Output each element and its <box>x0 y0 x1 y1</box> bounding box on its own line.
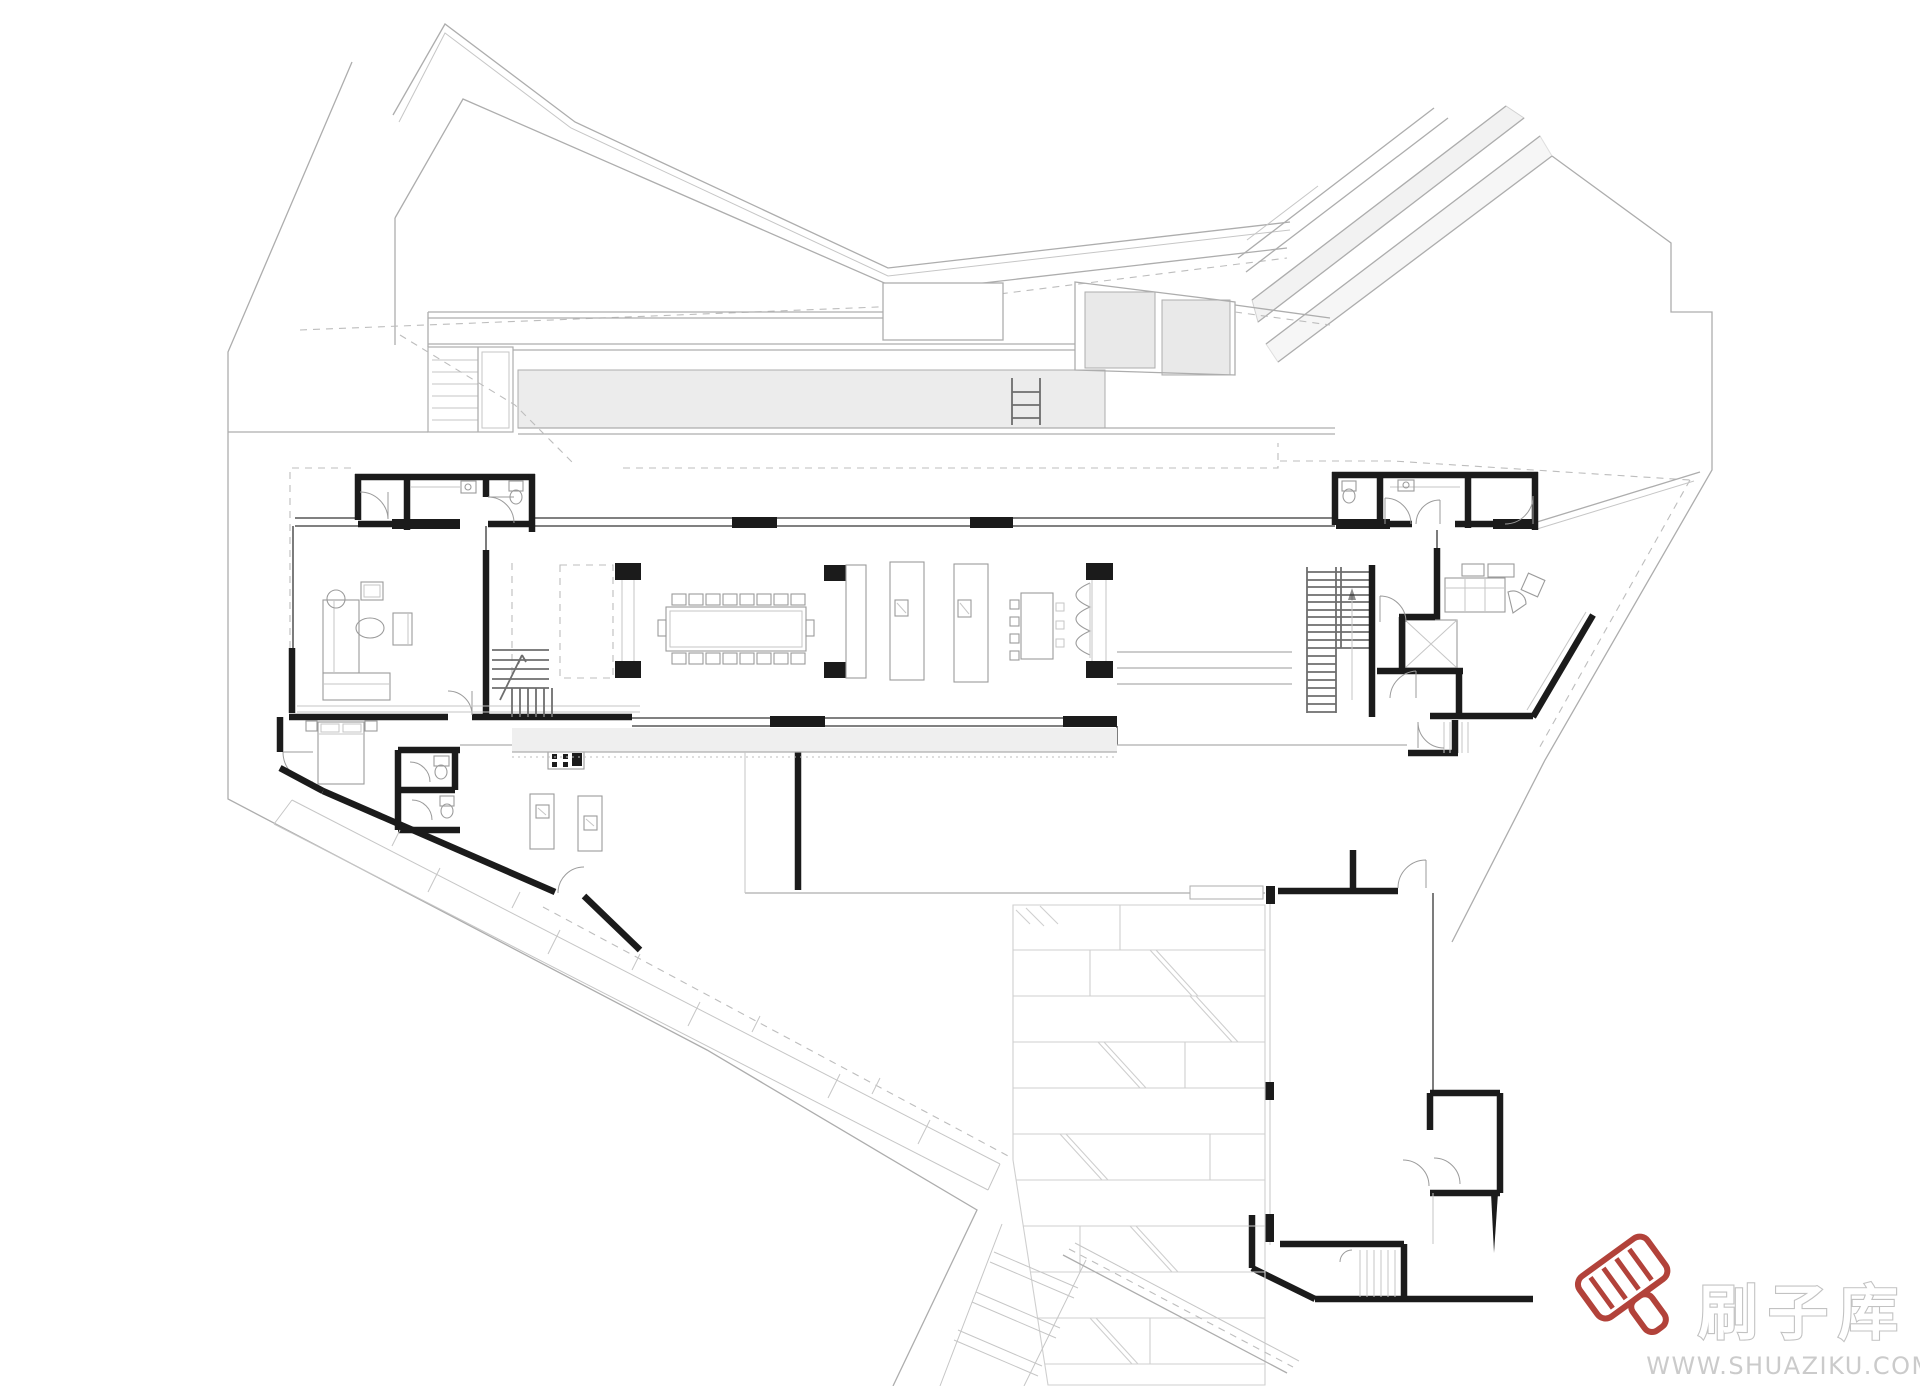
url-text: WWW.SHUAZIKU.COM <box>1646 1352 1920 1380</box>
floor-plan-canvas: 刷子库 WWW.SHUAZIKU.COM <box>0 0 1920 1386</box>
toilet-icon <box>1342 481 1356 503</box>
main-stair <box>1307 567 1370 713</box>
toilet-icon <box>434 756 449 779</box>
lower-wing <box>1252 850 1533 1299</box>
skylight-bands <box>1238 106 1552 362</box>
spa-block <box>883 283 1003 340</box>
curtain-scallops <box>1076 583 1090 658</box>
dining-table <box>658 594 814 664</box>
toilet-icon <box>440 796 454 818</box>
brand-text: 刷子库 <box>1698 1279 1908 1349</box>
walkway-steps <box>940 1224 1299 1386</box>
pool-terrace <box>400 282 1335 463</box>
watermark: 刷子库 WWW.SHUAZIKU.COM <box>1574 1233 1920 1380</box>
lower-deck <box>512 728 1407 899</box>
bathroom-block-right <box>1332 472 1538 530</box>
bath-small <box>398 750 460 830</box>
living-room <box>289 526 640 717</box>
sink-icon <box>1398 480 1414 491</box>
kitchen-islands <box>890 562 988 682</box>
garden-stair <box>428 347 513 432</box>
elevator <box>1377 617 1463 671</box>
right-section <box>1117 530 1593 753</box>
cooktop-icon <box>548 751 584 769</box>
kitchen-wing-islands <box>530 794 602 851</box>
living-room-furniture <box>323 582 412 700</box>
pool <box>518 370 1105 428</box>
stair-hall <box>492 650 552 717</box>
sink-icon <box>461 481 476 493</box>
bar-counter <box>1010 593 1064 660</box>
brick-terrace <box>1013 905 1265 1385</box>
brush-icon <box>1574 1233 1694 1354</box>
roof-overhang-dashed <box>290 443 1690 1157</box>
store-room <box>1430 1093 1500 1253</box>
lounge-furniture <box>1445 564 1545 613</box>
bathroom-block-left <box>355 474 535 532</box>
toilet-icon <box>509 481 523 504</box>
site-boundary <box>228 62 1712 1386</box>
bed <box>306 721 377 784</box>
lower-stair <box>1252 1215 1533 1299</box>
planter-terraces <box>274 800 1000 1190</box>
kitchen-room <box>460 745 800 890</box>
